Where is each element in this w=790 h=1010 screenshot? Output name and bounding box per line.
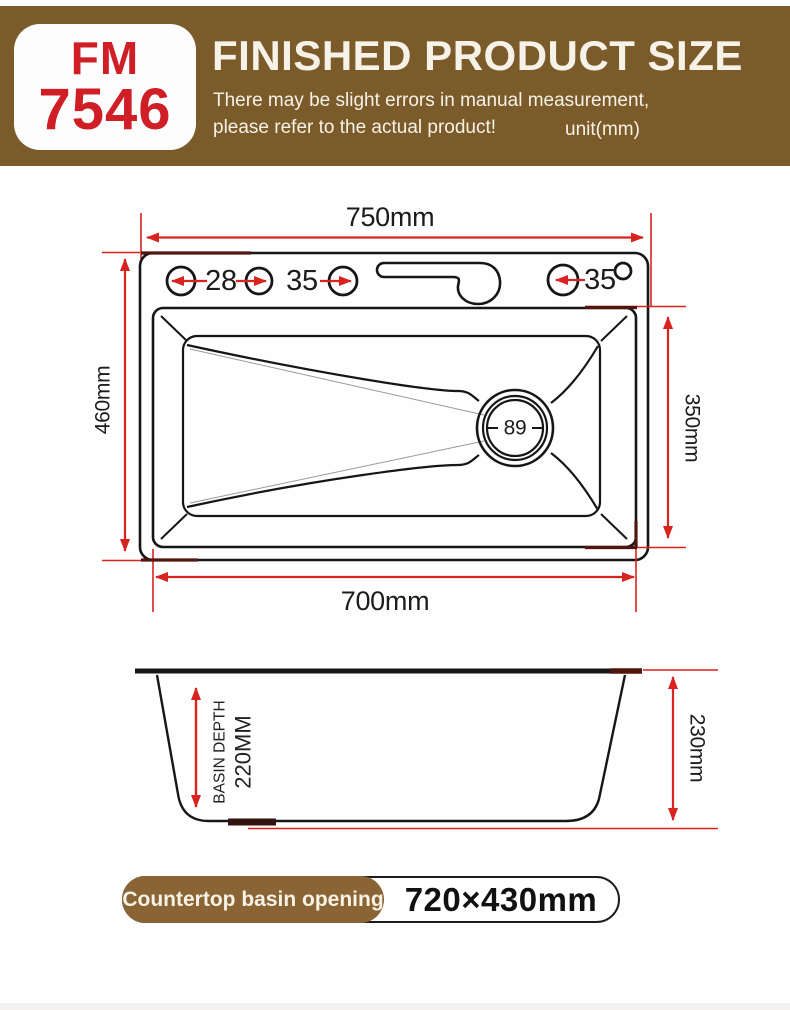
side-height-label: 230mm: [686, 714, 709, 783]
basin-depth-label: BASIN DEPTH: [212, 700, 229, 803]
model-code-prefix: FM: [71, 35, 139, 81]
overlap-marks: [141, 253, 637, 560]
dimension-bowl-width: 700mm: [153, 521, 636, 616]
bottom-edge-strip: [0, 1003, 790, 1010]
bowl-width-label: 700mm: [341, 586, 430, 616]
dimension-overall-depth: 460mm: [92, 253, 156, 561]
hole-dim-1-label: 28: [205, 265, 237, 297]
overall-depth-label: 460mm: [92, 366, 115, 435]
disclaimer-line1: There may be slight errors in manual mea…: [213, 90, 649, 112]
faucet-deck: 28 35 35: [167, 263, 631, 304]
sink-outer-rim: [140, 253, 648, 560]
dimension-bowl-depth: 350mm: [585, 307, 704, 548]
unit-note: unit(mm): [565, 119, 640, 141]
model-badge: FM 7546: [14, 24, 196, 150]
waterfall-slot: [377, 263, 500, 304]
basin-bowl-rim: [153, 308, 636, 547]
bowl-depth-label: 350mm: [681, 394, 704, 463]
corner-crease-lines: [161, 316, 627, 539]
drain: 89: [477, 390, 553, 466]
dimension-basin-depth: BASIN DEPTH 220MM: [196, 688, 256, 807]
disclaimer-line2: please refer to the actual product!: [213, 117, 496, 139]
opening-size-callout: Countertop basin opening 720×430mm: [122, 876, 620, 923]
drain-stub: [228, 819, 276, 826]
page-title: FINISHED PRODUCT SIZE: [212, 32, 743, 80]
drain-diameter-label: 89: [504, 417, 527, 440]
header-banner: FM 7546 FINISHED PRODUCT SIZE There may …: [0, 6, 790, 166]
side-view-diagram: 230mm BASIN DEPTH 220MM: [135, 670, 718, 829]
dimension-side-height: 230mm: [248, 670, 718, 829]
product-size-sheet: FM 7546 FINISHED PRODUCT SIZE There may …: [0, 0, 790, 1010]
top-view-diagram: 750mm 28 35 35: [92, 202, 704, 616]
hole-dim-2-label: 35: [286, 265, 318, 297]
opening-size-label: Countertop basin opening: [122, 876, 384, 923]
small-accessory-hole: [615, 263, 631, 279]
hole-dim-3-label: 35: [584, 264, 616, 296]
basin-bowl-bottom: [183, 336, 600, 516]
opening-size-value: 720×430mm: [384, 878, 618, 921]
model-code-number: 7546: [38, 81, 171, 139]
dimension-drawing: 750mm 28 35 35: [0, 170, 790, 870]
basin-depth-value: 220MM: [231, 715, 256, 788]
overall-width-label: 750mm: [346, 202, 435, 232]
